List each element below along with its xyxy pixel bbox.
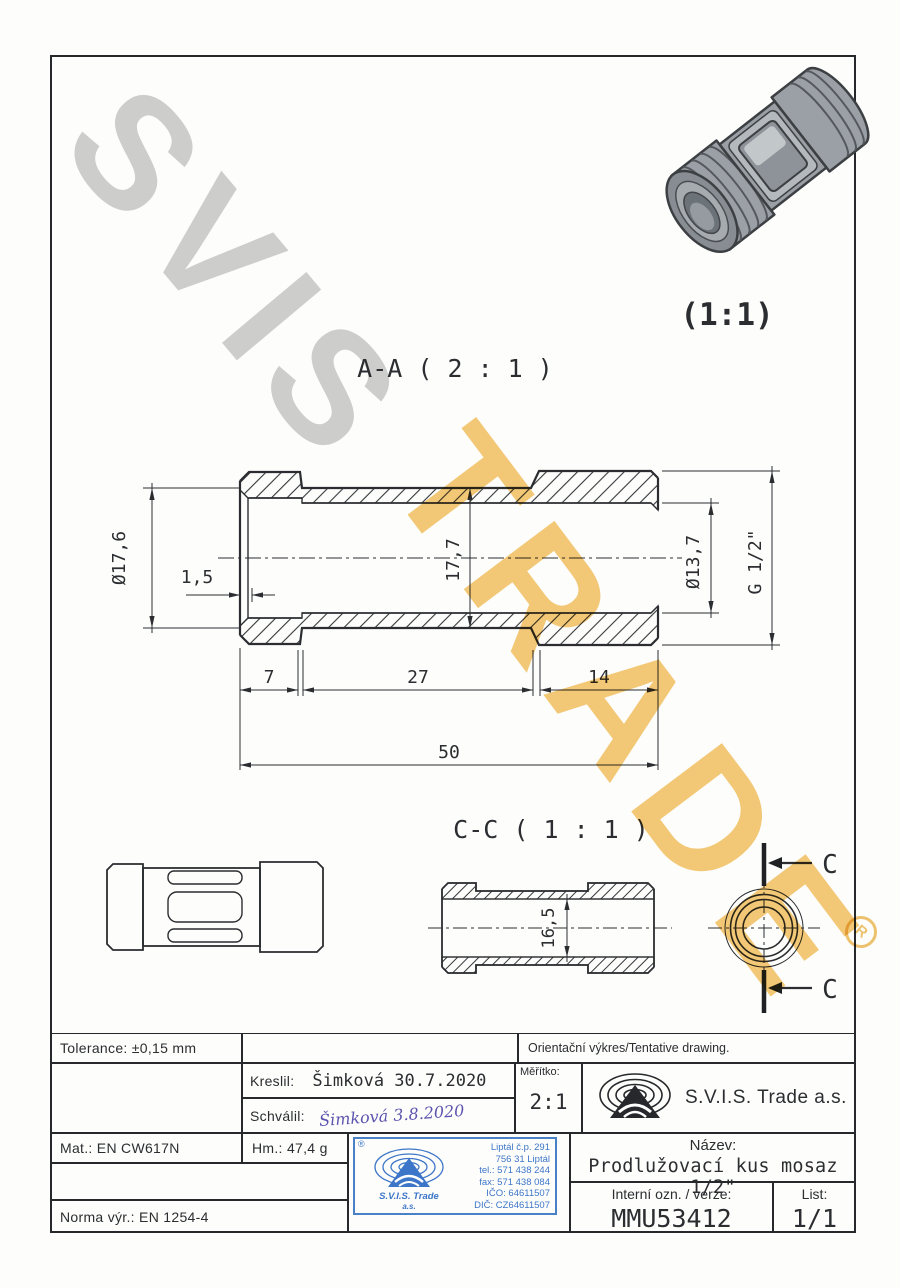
title-field: Název: Prodlužovací kus mosaz 1/2" (570, 1133, 856, 1182)
title-block: Tolerance: ±0,15 mm Orientační výkres/Te… (50, 1033, 856, 1233)
section-a-label: A-A ( 2 : 1 ) (357, 354, 553, 383)
empty-cell (50, 1063, 242, 1133)
internal-id-field: Interní ozn. / verze: MMU53412 (570, 1182, 773, 1233)
cut-plane-labels: C C (822, 850, 838, 1005)
tolerance-field: Tolerance: ±0,15 mm (50, 1033, 242, 1063)
stamp-tel: tel.: 571 438 244 (474, 1165, 550, 1177)
approved-by-row: Schválil: Šimková 3.8.2020 (242, 1098, 515, 1133)
sheet-label: List: (774, 1186, 855, 1202)
iso-scale-label: (1:1) (680, 297, 773, 333)
standard-field: Norma výr.: EN 1254-4 (50, 1200, 348, 1233)
scale-label: Měřítko: (520, 1066, 560, 1078)
approved-by-label: Schválil: (250, 1108, 305, 1124)
svg-text:50: 50 (438, 742, 460, 763)
end-view (708, 843, 820, 1013)
stamp-address2: 756 31 Liptál (474, 1154, 550, 1166)
svg-text:C: C (822, 850, 838, 880)
scale-value: 2:1 (516, 1090, 581, 1114)
drawn-by-label: Kreslil: (250, 1073, 294, 1089)
svg-text:14: 14 (588, 667, 610, 688)
empty-cell (50, 1163, 348, 1200)
stamp-dic: DIČ: CZ64611507 (474, 1200, 550, 1212)
sheet-value: 1/1 (774, 1204, 855, 1233)
drawn-by-row: Kreslil: Šimková 30.7.2020 (242, 1063, 515, 1098)
internal-id-value: MMU53412 (571, 1204, 772, 1233)
internal-id-label: Interní ozn. / verze: (571, 1186, 772, 1202)
svg-text:1,5: 1,5 (181, 567, 214, 588)
company-field: S.V.I.S. Trade a.s. (582, 1063, 856, 1133)
stamp-company-suffix: a.s. (363, 1202, 455, 1211)
mass-field: Hm.: 47,4 g (242, 1133, 348, 1163)
stamp-company-name: S.V.I.S. Trade (363, 1191, 455, 1202)
stamp-address1: Liptál č.p. 291 (474, 1142, 550, 1154)
section-a-dim-texts: Ø17,6 1,5 17,7 Ø13,7 G 1/2" 7 27 14 50 (109, 529, 766, 763)
drawn-by-value: Šimková 30.7.2020 (312, 1071, 486, 1091)
svg-text:7: 7 (264, 667, 275, 688)
section-c-dim-text: 16,5 (539, 908, 559, 949)
company-logo (597, 1070, 673, 1126)
stamp-ico: IČO: 64611507 (474, 1188, 550, 1200)
empty-cell (242, 1033, 518, 1063)
company-stamp: ® S.V.I.S. Trade a.s. Liptál č.p. 291 (353, 1137, 557, 1215)
svg-text:C: C (822, 975, 838, 1005)
scale-field: Měřítko: 2:1 (515, 1063, 582, 1133)
drawing-sheet: SVIS (0, 0, 900, 1288)
svg-text:G 1/2": G 1/2" (745, 529, 766, 594)
company-name: S.V.I.S. Trade a.s. (685, 1087, 847, 1109)
svg-text:Ø17,6: Ø17,6 (109, 531, 130, 585)
approval-signature: Šimková 3.8.2020 (318, 1101, 464, 1130)
material-field: Mat.: EN CW617N (50, 1133, 242, 1163)
stamp-logo (363, 1143, 455, 1193)
title-label: Název: (571, 1137, 855, 1154)
sheet-field: List: 1/1 (773, 1182, 856, 1233)
stamp-address-block: Liptál č.p. 291 756 31 Liptál tel.: 571 … (474, 1142, 550, 1212)
isometric-view (653, 59, 880, 265)
stamp-cell: ® S.V.I.S. Trade a.s. Liptál č.p. 291 (348, 1133, 570, 1233)
svg-text:17,7: 17,7 (443, 538, 464, 581)
section-c-label: C-C ( 1 : 1 ) (453, 815, 649, 844)
stamp-fax: fax: 571 438 084 (474, 1177, 550, 1189)
tentative-drawing-note: Orientační výkres/Tentative drawing. (518, 1033, 856, 1063)
side-view (107, 862, 323, 952)
svg-text:27: 27 (407, 667, 429, 688)
svg-text:Ø13,7: Ø13,7 (683, 535, 704, 589)
